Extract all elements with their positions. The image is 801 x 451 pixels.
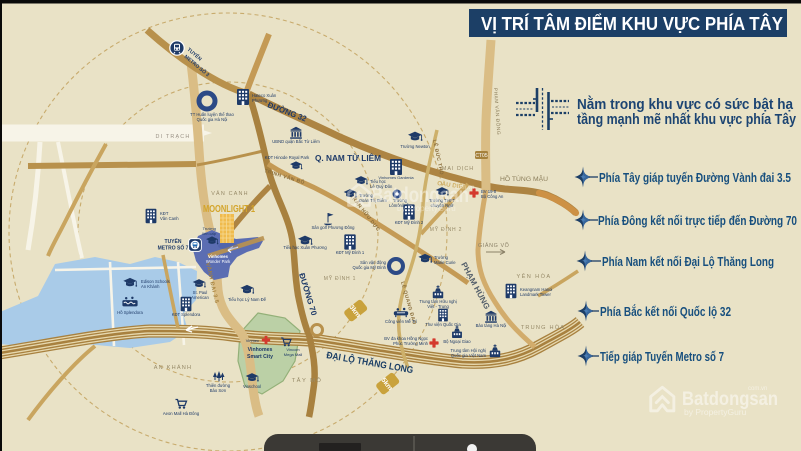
svg-text:Phương: Phương [252,98,268,103]
svg-text:MAI DỊCH: MAI DỊCH [442,166,474,172]
svg-text:Hồ Splendora: Hồ Splendora [117,310,143,315]
svg-text:Vinschool: Vinschool [243,384,261,389]
svg-text:YÊN HÒA: YÊN HÒA [517,272,552,280]
svg-text:liên cấp: liên cấp [202,231,217,236]
svg-text:Marie Curie: Marie Curie [434,260,456,265]
svg-text:Phía Tây giáp tuyến Đường Vành: Phía Tây giáp tuyến Đường Vành đai 3.5 [599,170,791,185]
svg-text:com.vn: com.vn [748,386,767,392]
svg-text:UBND quận Bắc Từ Liêm: UBND quận Bắc Từ Liêm [272,139,320,144]
svg-text:TRUNG HÒA: TRUNG HÒA [521,324,565,331]
svg-text:Q. NAM TỪ LIÊM: Q. NAM TỪ LIÊM [315,152,381,163]
svg-text:TUYẾN: TUYẾN [165,238,182,245]
svg-text:Trường Newton: Trường Newton [400,144,430,149]
svg-text:Vinhomes: Vinhomes [248,347,273,353]
svg-text:AN KHÁNH: AN KHÁNH [154,364,193,371]
svg-text:American: American [191,295,209,300]
svg-text:Quốc gia Việt Nam: Quốc gia Việt Nam [451,353,487,358]
svg-text:An Khánh: An Khánh [141,284,160,289]
svg-text:Vân Canh: Vân Canh [160,216,179,221]
svg-text:GIẢNG VÕ: GIẢNG VÕ [478,242,509,249]
svg-text:KĐT Splendora: KĐT Splendora [172,312,201,317]
svg-text:CT05: CT05 [475,153,487,159]
svg-text:Quốc gia Hà Nội: Quốc gia Hà Nội [197,117,228,122]
svg-text:Landmark Tower: Landmark Tower [520,292,551,297]
svg-text:Smart City: Smart City [247,354,273,360]
svg-text:Bảo Sơn: Bảo Sơn [210,388,227,393]
svg-text:by PropertyGuru: by PropertyGuru [684,407,747,417]
svg-text:MỸ ĐÌNH 1: MỸ ĐÌNH 1 [324,275,356,282]
svg-text:Bộ Ngoại Giao: Bộ Ngoại Giao [443,339,471,344]
svg-text:Phía Đông kết nối trực tiếp đế: Phía Đông kết nối trực tiếp đến Đường 70 [598,213,797,228]
svg-text:MOONLIGHT 1: MOONLIGHT 1 [203,204,255,215]
svg-text:tầng mạnh mẽ nhất khu vực phía: tầng mạnh mẽ nhất khu vực phía Tây [577,111,797,128]
svg-text:KĐT Mỹ Đình 2: KĐT Mỹ Đình 2 [395,220,424,225]
svg-text:Bảo tàng Hà Nội: Bảo tàng Hà Nội [476,323,507,328]
svg-text:Aeon Mall Hà Đông: Aeon Mall Hà Đông [163,411,200,416]
svg-text:Tiểu học Lý Nam Đế: Tiểu học Lý Nam Đế [228,297,267,302]
svg-text:KĐT Hinode Royal Park: KĐT Hinode Royal Park [265,155,310,160]
svg-text:Mega Mall: Mega Mall [284,352,303,357]
svg-text:MỸ ĐÌNH 2: MỸ ĐÌNH 2 [430,226,462,233]
svg-text:Vinmec: Vinmec [246,338,259,343]
svg-text:TÂY MỖ: TÂY MỖ [292,377,323,384]
svg-text:VÂN CANH: VÂN CANH [211,190,248,197]
svg-text:Công viên Mễ Trì: Công viên Mễ Trì [385,319,417,324]
svg-text:Quốc gia Mỹ Đình: Quốc gia Mỹ Đình [352,265,386,270]
svg-text:VỊ TRÍ TÂM ĐIỂM KHU VỰC PHÍA T: VỊ TRÍ TÂM ĐIỂM KHU VỰC PHÍA TÂY [481,13,784,34]
svg-text:Phía Nam kết nối Đại Lộ Thăng: Phía Nam kết nối Đại Lộ Thăng Long [602,254,774,269]
svg-text:METRO SỐ 7: METRO SỐ 7 [158,245,189,252]
svg-text:Tiếp giáp Tuyến Metro số 7: Tiếp giáp Tuyến Metro số 7 [600,349,724,364]
svg-text:Phía Bắc kết nối Quốc lộ 32: Phía Bắc kết nối Quốc lộ 32 [600,304,731,319]
svg-text:by PropertyGuru: by PropertyGuru [397,204,456,213]
svg-text:com.vn: com.vn [455,185,474,191]
svg-text:Thư viện Quốc Gia: Thư viện Quốc Gia [425,322,461,327]
svg-text:DI TRẠCH: DI TRẠCH [156,134,191,140]
svg-text:Sân golf Phương Đông: Sân golf Phương Đông [311,225,355,230]
svg-text:Việt - Trung: Việt - Trung [427,304,449,309]
svg-text:Tiểu học Xuân Phương: Tiểu học Xuân Phương [283,245,327,250]
svg-text:Bộ Công An: Bộ Công An [481,194,504,199]
svg-text:Phúc Trường Minh: Phúc Trường Minh [393,341,429,346]
svg-text:KĐT Mỹ Đình 1: KĐT Mỹ Đình 1 [336,250,365,255]
